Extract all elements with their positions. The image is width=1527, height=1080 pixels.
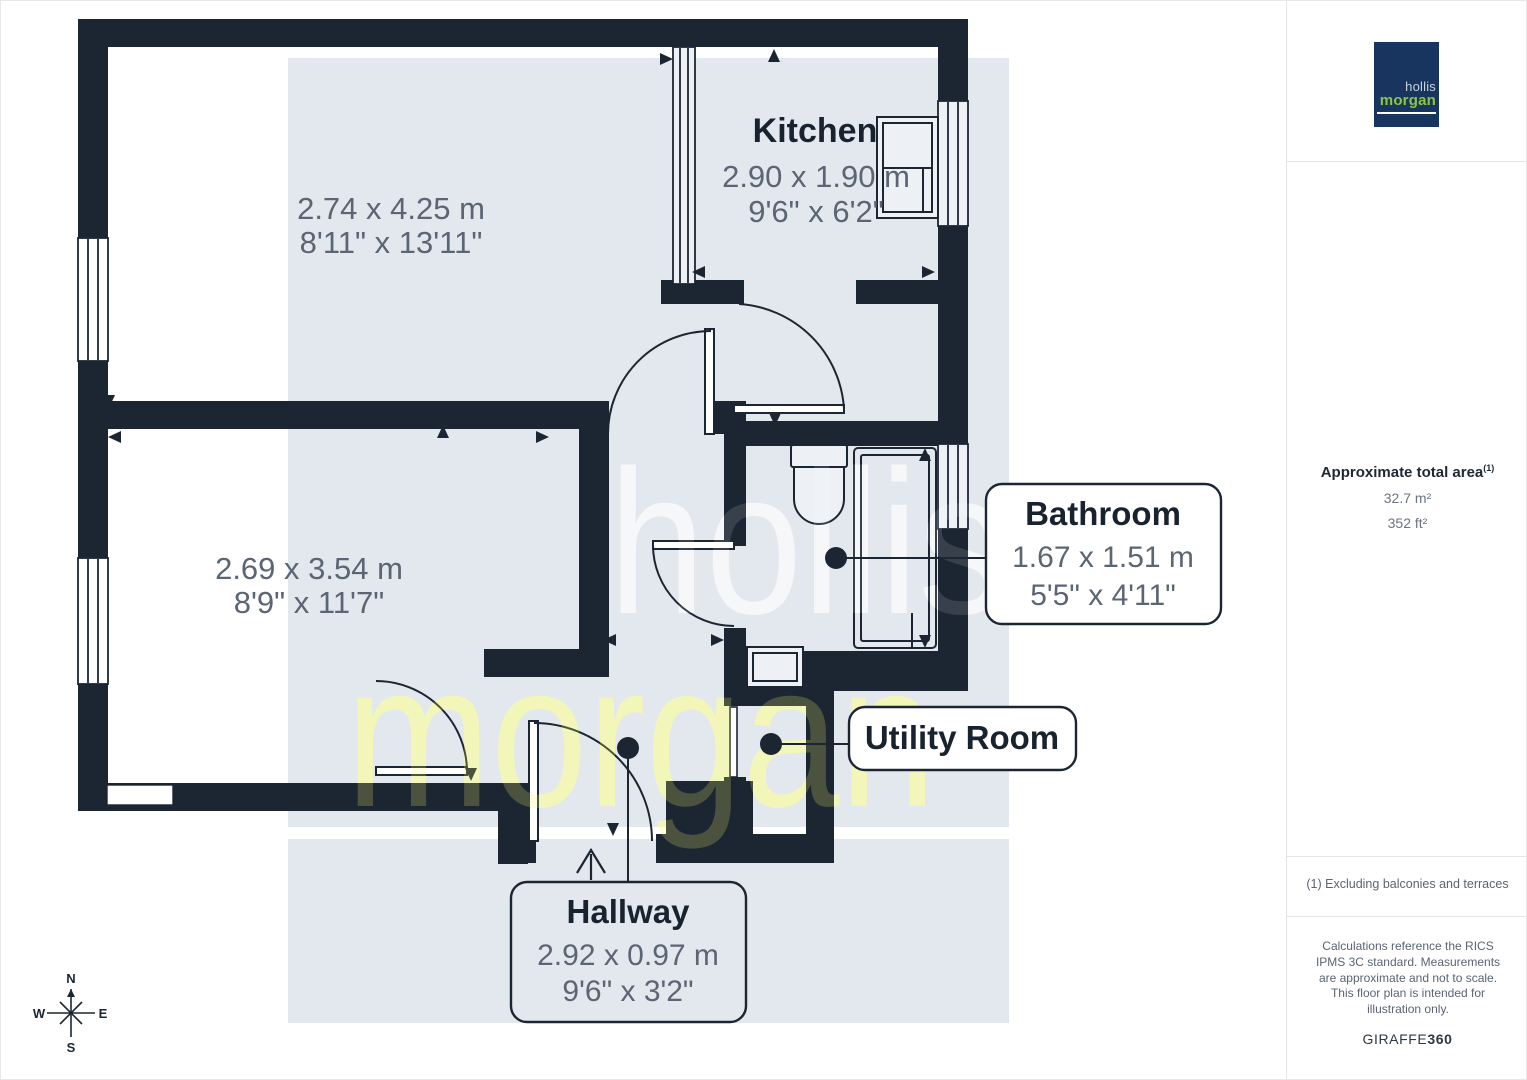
kitchen-dims-imperial: 9'6" x 6'2" — [748, 194, 884, 229]
total-area-title: Approximate total area(1) — [1287, 463, 1527, 481]
window-room2-left — [78, 558, 108, 684]
logo-rule — [1377, 112, 1436, 114]
callout-utility: Utility Room — [849, 707, 1076, 770]
compass-rose-icon — [47, 989, 95, 1037]
area-footnote: (1) Excluding balconies and terraces — [1287, 877, 1527, 891]
sidebar-divider-1 — [1287, 161, 1527, 162]
compass-s: S — [67, 1040, 76, 1055]
wall-recess — [107, 785, 173, 805]
total-area-title-text: Approximate total area — [1321, 464, 1484, 481]
room1-dims-metric: 2.74 x 4.25 m — [297, 191, 485, 226]
window-room1-left — [78, 238, 108, 361]
window-partition-kitchen — [673, 47, 695, 284]
giraffe360-brand: GIRAFFE360 — [1287, 1031, 1527, 1047]
sidebar-divider-2 — [1287, 856, 1527, 857]
svg-text:morgan: morgan — [346, 622, 937, 850]
floorplan-canvas: hollis morgan — [1, 1, 1286, 1080]
hollis-morgan-logo: hollis morgan — [1374, 42, 1439, 127]
compass-w: W — [33, 1006, 46, 1021]
total-area-ft2: 352 ft² — [1287, 515, 1527, 531]
utility-name: Utility Room — [865, 719, 1059, 756]
compass-e: E — [99, 1006, 108, 1021]
compass-n: N — [66, 971, 75, 986]
kitchen-name: Kitchen — [753, 112, 878, 150]
hallway-dims-metric: 2.92 x 0.97 m — [537, 939, 719, 972]
hallway-dims-imperial: 9'6" x 3'2" — [562, 975, 693, 1008]
sidebar-divider-3 — [1287, 916, 1527, 917]
logo-morgan-text: morgan — [1380, 93, 1436, 109]
brand-name: GIRAFFE — [1362, 1031, 1427, 1047]
room2-dims-metric: 2.69 x 3.54 m — [215, 551, 403, 586]
info-sidebar: hollis morgan Approximate total area(1) … — [1286, 1, 1527, 1080]
hallway-name: Hallway — [567, 893, 691, 930]
bathroom-dims-imperial: 5'5" x 4'11" — [1030, 579, 1176, 612]
callout-bathroom: Bathroom 1.67 x 1.51 m 5'5" x 4'11" — [986, 484, 1221, 624]
total-area-block: Approximate total area(1) 32.7 m² 352 ft… — [1287, 463, 1527, 531]
total-area-note-ref: (1) — [1483, 463, 1494, 473]
total-area-m2: 32.7 m² — [1287, 490, 1527, 506]
bathroom-dims-metric: 1.67 x 1.51 m — [1012, 541, 1194, 574]
window-kitchen-right — [938, 101, 968, 226]
room1-dims-imperial: 8'11" x 13'11" — [300, 225, 483, 260]
room2-dims-imperial: 8'9" x 11'7" — [234, 585, 384, 620]
kitchen-dims-metric: 2.90 x 1.90 m — [722, 159, 910, 194]
bathroom-name: Bathroom — [1025, 495, 1181, 532]
disclaimer-text: Calculations reference the RICS IPMS 3C … — [1308, 939, 1508, 1018]
floorplan-svg: hollis morgan — [1, 1, 1286, 1080]
brand-suffix: 360 — [1427, 1031, 1452, 1047]
floorplan-page: hollis morgan — [0, 0, 1527, 1080]
